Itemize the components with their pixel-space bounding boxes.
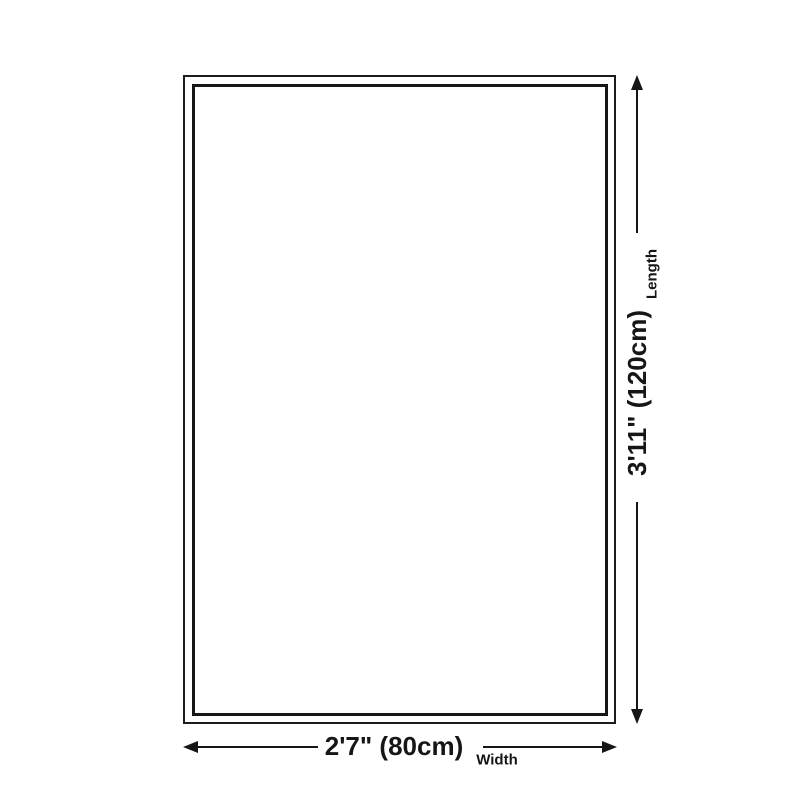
rug-outline-inner bbox=[192, 84, 608, 716]
width-value-label: 2'7" (80cm) bbox=[325, 733, 463, 759]
rug-size-diagram: Length 3'11" (120cm) 2'7" (80cm) Width bbox=[0, 0, 800, 800]
length-arrow-shaft-top bbox=[636, 88, 638, 233]
length-axis-label: Length bbox=[645, 249, 660, 299]
arrow-right-icon bbox=[602, 741, 617, 753]
length-value-label: 3'11" (120cm) bbox=[624, 310, 650, 476]
length-arrow-shaft-bottom bbox=[636, 502, 638, 709]
width-arrow-shaft-right bbox=[483, 746, 603, 748]
width-axis-label: Width bbox=[476, 753, 518, 768]
width-arrow-shaft-left bbox=[196, 746, 318, 748]
arrow-down-icon bbox=[631, 709, 643, 724]
